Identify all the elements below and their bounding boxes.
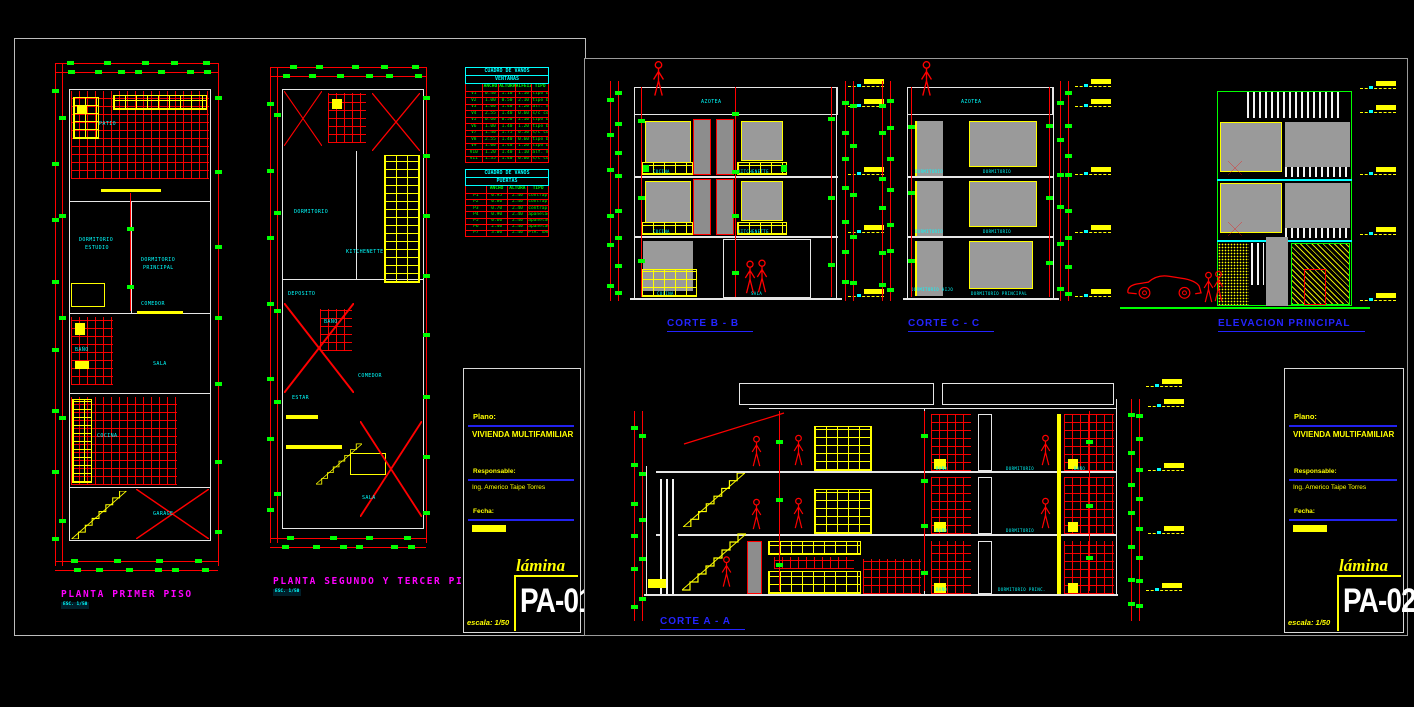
cad-element: CUADRO DE VANOS bbox=[466, 68, 549, 76]
dim-tick bbox=[74, 568, 81, 572]
dim-tick bbox=[842, 157, 849, 161]
closet bbox=[71, 283, 105, 307]
cad-shape bbox=[1376, 227, 1396, 232]
dim-tick bbox=[1128, 451, 1135, 455]
table-ventanas: CUADRO DE VANOSVENTANASANCHOALTURAALFEIZ… bbox=[465, 67, 549, 163]
kitchenette-counter bbox=[384, 155, 420, 283]
window bbox=[1285, 122, 1350, 167]
level-marker bbox=[1075, 225, 1111, 234]
cad-shape bbox=[857, 230, 861, 233]
dim-tick bbox=[158, 70, 165, 74]
dim-tick bbox=[202, 568, 209, 572]
dim-tick bbox=[1057, 242, 1064, 246]
room-label: COMEDOR bbox=[358, 373, 382, 379]
cad-shape bbox=[70, 201, 211, 202]
resp-label: Responsable: bbox=[1294, 469, 1337, 476]
cad-element: P7 bbox=[466, 230, 487, 236]
void-cross bbox=[284, 303, 354, 393]
cad-shape bbox=[69, 89, 70, 541]
dim-tick bbox=[615, 174, 622, 178]
cut-line bbox=[684, 411, 784, 446]
cad-shape bbox=[70, 393, 211, 394]
dim-tick bbox=[274, 400, 281, 404]
cad-shape bbox=[1369, 110, 1373, 113]
escala: escala: 1/50 bbox=[1288, 619, 1330, 627]
cad-shape bbox=[1091, 289, 1111, 294]
corte-aa: BAÑO DORMITORIO BAÑO BAÑO DORMITORIO BAÑ… bbox=[634, 371, 1184, 624]
cad-shape bbox=[1162, 583, 1182, 588]
window-panel bbox=[645, 181, 691, 223]
dim-line bbox=[270, 547, 426, 548]
dim-tick bbox=[274, 113, 281, 117]
dim-tick bbox=[1136, 604, 1143, 608]
dim-tick bbox=[274, 211, 281, 215]
dim-tick bbox=[52, 409, 59, 413]
dim-tick bbox=[921, 479, 928, 483]
shutter bbox=[1285, 228, 1350, 238]
cad-shape bbox=[1120, 307, 1370, 309]
room-label: DORMITORIO bbox=[294, 209, 328, 215]
dim-tick bbox=[381, 65, 388, 69]
level-marker bbox=[1360, 105, 1396, 114]
dim-tick bbox=[204, 70, 211, 74]
dim-line bbox=[270, 76, 426, 77]
cad-shape bbox=[978, 414, 992, 471]
room-label: DORMITORIO bbox=[915, 229, 943, 234]
dim-tick bbox=[638, 119, 645, 123]
resp-value: Ing. Americo Taipe Torres bbox=[472, 484, 545, 491]
room-label: DORMITORIO bbox=[1006, 528, 1034, 533]
cad-shape bbox=[1075, 232, 1111, 233]
door-panel bbox=[693, 179, 711, 235]
cad-element: ANCHO bbox=[486, 186, 507, 194]
person-roof bbox=[651, 61, 666, 98]
cad-shape bbox=[857, 172, 861, 175]
dim-tick bbox=[850, 281, 857, 285]
person bbox=[1039, 494, 1052, 534]
dim-line bbox=[610, 81, 611, 301]
room-label: DORMITORIO bbox=[79, 237, 113, 243]
dim-tick bbox=[607, 168, 614, 172]
dim-tick bbox=[631, 502, 638, 506]
cad-shape bbox=[1376, 105, 1396, 110]
cad-shape bbox=[942, 383, 1114, 405]
cad-element: CUADRO DE VANOSVENTANASANCHOALTURAALFEIZ… bbox=[466, 68, 549, 163]
cad-shape bbox=[1164, 463, 1184, 468]
plano-label: Plano: bbox=[473, 413, 496, 421]
level-marker bbox=[1075, 79, 1111, 88]
dim-tick bbox=[921, 571, 928, 575]
dim-tick bbox=[274, 309, 281, 313]
escala: escala: 1/50 bbox=[467, 619, 509, 627]
dim-tick bbox=[879, 131, 886, 135]
room-label: DORMITORIO bbox=[983, 229, 1011, 234]
dim-tick bbox=[1086, 556, 1093, 560]
cad-shape bbox=[282, 89, 424, 90]
kitchen-counter bbox=[72, 399, 92, 483]
room-label: COCINA bbox=[97, 433, 117, 439]
cad-element: CUADRO DE VANOSPUERTASANCHOALTURATIPOP10… bbox=[466, 170, 549, 237]
cad-shape bbox=[1293, 525, 1327, 532]
fecha-label: Fecha: bbox=[473, 509, 494, 516]
cad-shape bbox=[1091, 79, 1111, 84]
dim-tick bbox=[356, 545, 363, 549]
corte-aa-title: CORTE A - A bbox=[660, 617, 745, 630]
plano-value: VIVIENDA MULTIFAMILIAR bbox=[1293, 431, 1401, 440]
cad-element: V111.351.400.60s/c corrediza bbox=[466, 156, 549, 162]
cad-shape bbox=[1155, 588, 1159, 591]
cad-element bbox=[922, 62, 932, 96]
cad-element: 1.40 bbox=[499, 156, 516, 162]
dim-tick bbox=[887, 288, 894, 292]
dim-tick bbox=[282, 545, 289, 549]
cad-shape bbox=[75, 361, 89, 369]
cad-shape bbox=[1068, 522, 1078, 532]
cad-shape bbox=[836, 87, 837, 300]
dim-tick bbox=[1086, 504, 1093, 508]
dim-tick bbox=[921, 524, 928, 528]
dim-tick bbox=[1136, 527, 1143, 531]
entry-grille bbox=[1251, 243, 1264, 285]
dim-tick bbox=[68, 70, 75, 74]
cad-shape bbox=[1148, 406, 1184, 407]
dim-tick bbox=[52, 348, 59, 352]
cad-element bbox=[1228, 222, 1242, 236]
cad-element: apanelada bbox=[528, 212, 549, 218]
dim-tick bbox=[879, 104, 886, 108]
plan2-scale: ESC. 1/50 bbox=[273, 589, 301, 596]
dim-tick bbox=[340, 545, 347, 549]
dim-tick bbox=[215, 382, 222, 386]
cad-shape bbox=[1075, 106, 1111, 107]
cad-shape bbox=[1091, 99, 1111, 104]
dim-tick bbox=[52, 218, 59, 222]
dim-tick bbox=[776, 563, 783, 567]
dim-tick bbox=[215, 460, 222, 464]
room-label: DORMITORIO bbox=[141, 257, 175, 263]
dim-tick bbox=[921, 434, 928, 438]
dim-line bbox=[1131, 399, 1132, 621]
cad-shape bbox=[137, 311, 183, 314]
cad-element: VENTANAS bbox=[466, 76, 549, 84]
dim-tick bbox=[313, 545, 320, 549]
room-label: DORMITORIO bbox=[983, 169, 1011, 174]
level-marker bbox=[1146, 379, 1182, 388]
dim-tick bbox=[1086, 440, 1093, 444]
person bbox=[750, 433, 763, 471]
room-label: KITCHENETTE bbox=[346, 249, 384, 255]
person bbox=[750, 496, 763, 534]
cad-element bbox=[72, 491, 127, 539]
cad-shape bbox=[1217, 179, 1352, 181]
table-puertas: CUADRO DE VANOSPUERTASANCHOALTURATIPOP10… bbox=[465, 169, 549, 237]
dim-tick bbox=[59, 214, 66, 218]
stair-railing bbox=[660, 479, 678, 594]
cad-shape bbox=[1157, 468, 1161, 471]
cad-shape bbox=[1289, 425, 1397, 427]
level-marker bbox=[1075, 289, 1111, 298]
cad-shape bbox=[903, 298, 1059, 300]
sheet-number: PA-02 bbox=[1343, 584, 1414, 618]
cad-shape bbox=[1337, 575, 1401, 577]
cad-element: apanelada bbox=[528, 218, 549, 224]
cad-shape bbox=[70, 487, 211, 488]
dim-line bbox=[426, 67, 427, 543]
dim-line bbox=[62, 63, 63, 566]
dim-tick bbox=[1136, 579, 1143, 583]
cad-shape bbox=[634, 87, 635, 300]
cad-shape bbox=[1084, 230, 1088, 233]
level-marker bbox=[1075, 99, 1111, 108]
cad-element: 3.00 bbox=[486, 230, 507, 236]
kitchen-counter bbox=[768, 571, 861, 594]
cad-shape bbox=[1360, 112, 1396, 113]
elevacion-title: ELEVACION PRINCIPAL bbox=[1218, 319, 1365, 332]
dim-tick bbox=[52, 89, 59, 93]
door-panel bbox=[716, 179, 734, 235]
dim-tick bbox=[415, 74, 422, 78]
window bbox=[1285, 183, 1350, 228]
cad-table: CUADRO DE VANOSPUERTASANCHOALTURATIPOP10… bbox=[465, 169, 549, 237]
cad-shape bbox=[978, 477, 992, 534]
room-label: KITCHENETTE bbox=[738, 229, 769, 234]
cad-shape bbox=[131, 201, 132, 313]
roof-railing bbox=[1247, 92, 1342, 118]
cad-shape bbox=[77, 105, 87, 113]
dim-tick bbox=[639, 434, 646, 438]
cad-element bbox=[284, 303, 354, 393]
room-label: PATIO bbox=[99, 121, 116, 127]
dim-tick bbox=[732, 170, 739, 174]
dim-tick bbox=[155, 568, 162, 572]
dim-tick bbox=[1128, 602, 1135, 606]
cad-element bbox=[1228, 161, 1242, 175]
cad-element: ALTURA bbox=[499, 84, 516, 92]
dim-tick bbox=[828, 263, 835, 267]
cad-shape bbox=[646, 466, 647, 594]
cad-shape bbox=[1075, 296, 1111, 297]
dim-tick bbox=[615, 91, 622, 95]
window-panel bbox=[741, 121, 783, 161]
cad-shape bbox=[644, 594, 1118, 596]
cad-shape bbox=[1376, 81, 1396, 86]
dim-tick bbox=[639, 518, 646, 522]
cad-element: CUADRO DE VANOS bbox=[466, 170, 549, 178]
dim-tick bbox=[1057, 287, 1064, 291]
cad-shape bbox=[1164, 399, 1184, 404]
dim-tick bbox=[1057, 205, 1064, 209]
dim-tick bbox=[1065, 236, 1072, 240]
dim-tick bbox=[215, 96, 222, 100]
dim-tick bbox=[850, 193, 857, 197]
cad-shape bbox=[857, 84, 861, 87]
cad-shape bbox=[1075, 174, 1111, 175]
dim-tick bbox=[842, 220, 849, 224]
cad-element bbox=[1041, 498, 1050, 528]
dim-tick bbox=[366, 536, 373, 540]
person bbox=[792, 494, 805, 534]
dim-tick bbox=[615, 151, 622, 155]
dim-tick bbox=[423, 455, 430, 459]
dim-tick bbox=[615, 122, 622, 126]
dim-line bbox=[55, 63, 56, 566]
cad-element: ALTURA bbox=[507, 186, 528, 194]
dim-tick bbox=[156, 559, 163, 563]
dim-line bbox=[130, 193, 131, 311]
room-label: SALA bbox=[362, 495, 376, 501]
cad-element bbox=[466, 84, 483, 92]
dim-tick bbox=[287, 536, 294, 540]
level-marker bbox=[1360, 81, 1396, 90]
dim-tick bbox=[1136, 556, 1143, 560]
dim-tick bbox=[607, 133, 614, 137]
dim-tick bbox=[1136, 497, 1143, 501]
cad-element: ANCHO bbox=[482, 84, 499, 92]
dim-tick bbox=[1057, 138, 1064, 142]
dim-tick bbox=[828, 117, 835, 121]
dim-tick bbox=[114, 559, 121, 563]
cad-element: ALFEIZAR bbox=[515, 84, 532, 92]
dim-line bbox=[882, 81, 883, 301]
cad-element: apanelada corrediza bbox=[528, 224, 549, 230]
door-panel bbox=[915, 181, 943, 236]
dim-tick bbox=[1065, 154, 1072, 158]
dim-tick bbox=[908, 125, 915, 129]
dim-tick bbox=[104, 61, 111, 65]
cad-element: PUERTAS bbox=[466, 178, 549, 186]
dim-tick bbox=[639, 472, 646, 476]
plano-label: Plano: bbox=[1294, 413, 1317, 421]
dim-tick bbox=[732, 214, 739, 218]
dim-tick bbox=[1136, 414, 1143, 418]
dim-tick bbox=[638, 196, 645, 200]
dim-tick bbox=[1136, 437, 1143, 441]
cad-shape bbox=[1075, 86, 1111, 87]
titleblock-pa02: Plano: VIVIENDA MULTIFAMILIAR Responsabl… bbox=[1284, 368, 1404, 633]
cad-element bbox=[794, 498, 803, 528]
cad-shape bbox=[1116, 399, 1117, 594]
dim-tick bbox=[887, 157, 894, 161]
dim-tick bbox=[330, 536, 337, 540]
dim-tick bbox=[337, 74, 344, 78]
person bbox=[792, 431, 805, 471]
titleblock-pa01: Plano: VIVIENDA MULTIFAMILIAR Responsabl… bbox=[463, 368, 581, 633]
cad-shape bbox=[907, 176, 1053, 178]
cad-shape bbox=[1146, 590, 1182, 591]
stairs bbox=[682, 473, 746, 527]
cad-shape bbox=[1148, 470, 1184, 471]
plan1-title: PLANTA PRIMER PISO bbox=[61, 590, 193, 600]
cad-element: TIPO bbox=[532, 84, 549, 92]
level-marker bbox=[1360, 167, 1396, 176]
dim-tick bbox=[423, 511, 430, 515]
dim-tick bbox=[631, 426, 638, 430]
cad-element bbox=[1041, 435, 1050, 465]
level-marker bbox=[1148, 526, 1184, 535]
cad-shape bbox=[1369, 298, 1373, 301]
backsplash bbox=[774, 557, 854, 569]
dim-tick bbox=[776, 498, 783, 502]
dim-tick bbox=[850, 104, 857, 108]
dim-tick bbox=[118, 70, 125, 74]
shutter bbox=[1285, 167, 1350, 177]
door-panel bbox=[716, 119, 734, 175]
dim-tick bbox=[639, 597, 646, 601]
dim-tick bbox=[71, 559, 78, 563]
planter bbox=[1228, 161, 1242, 175]
dim-tick bbox=[366, 74, 373, 78]
dim-tick bbox=[639, 557, 646, 561]
cad-element bbox=[684, 413, 784, 444]
dim-tick bbox=[631, 534, 638, 538]
dim-tick bbox=[267, 437, 274, 441]
room-label: BAÑO bbox=[1074, 466, 1085, 471]
room-label: COMEDOR bbox=[141, 301, 165, 307]
room-label: BAÑO bbox=[936, 466, 947, 471]
void-cross bbox=[360, 421, 422, 517]
dim-tick bbox=[59, 316, 66, 320]
dim-tick bbox=[842, 101, 849, 105]
dim-tick bbox=[172, 568, 179, 572]
level-marker bbox=[1360, 227, 1396, 236]
dim-tick bbox=[615, 209, 622, 213]
dim-tick bbox=[1057, 101, 1064, 105]
cad-shape bbox=[1057, 414, 1061, 594]
room-label: AZOTEA bbox=[961, 99, 981, 105]
dim-tick bbox=[887, 126, 894, 130]
cad-shape bbox=[1369, 172, 1373, 175]
cad-element bbox=[682, 534, 746, 590]
dim-tick bbox=[887, 223, 894, 227]
cad-element bbox=[372, 93, 420, 151]
cad-shape bbox=[1084, 84, 1088, 87]
cad-element bbox=[752, 499, 761, 529]
cad-shape bbox=[1369, 86, 1373, 89]
room-label: ESTAR bbox=[292, 395, 309, 401]
person-roof bbox=[919, 61, 934, 98]
cad-shape bbox=[978, 541, 992, 594]
dim-tick bbox=[1128, 483, 1135, 487]
dim-tick bbox=[908, 191, 915, 195]
cad-element: V11 bbox=[466, 156, 483, 162]
dim-tick bbox=[1128, 578, 1135, 582]
plan-primer-piso: PATIO DORMITORIO ESTUDIO DORMITORIO PRIN… bbox=[41, 61, 221, 578]
cad-shape bbox=[1376, 167, 1396, 172]
dim-tick bbox=[1065, 91, 1072, 95]
resp-value: Ing. Americo Taipe Torres bbox=[1293, 484, 1366, 491]
dim-tick bbox=[423, 395, 430, 399]
cad-element: P73.002.40PTA. GARAGE bbox=[466, 230, 549, 236]
sheet-pa02: AZOTEA COCINA KITCHENETTE COCINA KITCHEN… bbox=[584, 58, 1408, 636]
dim-tick bbox=[615, 264, 622, 268]
cad-element: contraplacada bbox=[528, 206, 549, 212]
cad-shape bbox=[1146, 386, 1182, 387]
dim-tick bbox=[423, 214, 430, 218]
dim-tick bbox=[95, 70, 102, 74]
planter bbox=[1228, 222, 1242, 236]
cad-shape bbox=[282, 528, 424, 529]
dim-tick bbox=[274, 492, 281, 496]
cad-shape bbox=[1360, 300, 1396, 301]
cad-shape bbox=[332, 99, 342, 109]
cad-table: CUADRO DE VANOSVENTANASANCHOALTURAALFEIZ… bbox=[465, 67, 549, 163]
cad-element: contraplacada bbox=[528, 200, 549, 206]
plan1-scale: ESC. 1/50 bbox=[61, 602, 89, 609]
dim-tick bbox=[879, 177, 886, 181]
dim-tick bbox=[1128, 413, 1135, 417]
corte-cc: AZOTEA DORMITORIO DORMITORIO DORMITORIO … bbox=[877, 69, 1112, 319]
dim-tick bbox=[638, 259, 645, 263]
